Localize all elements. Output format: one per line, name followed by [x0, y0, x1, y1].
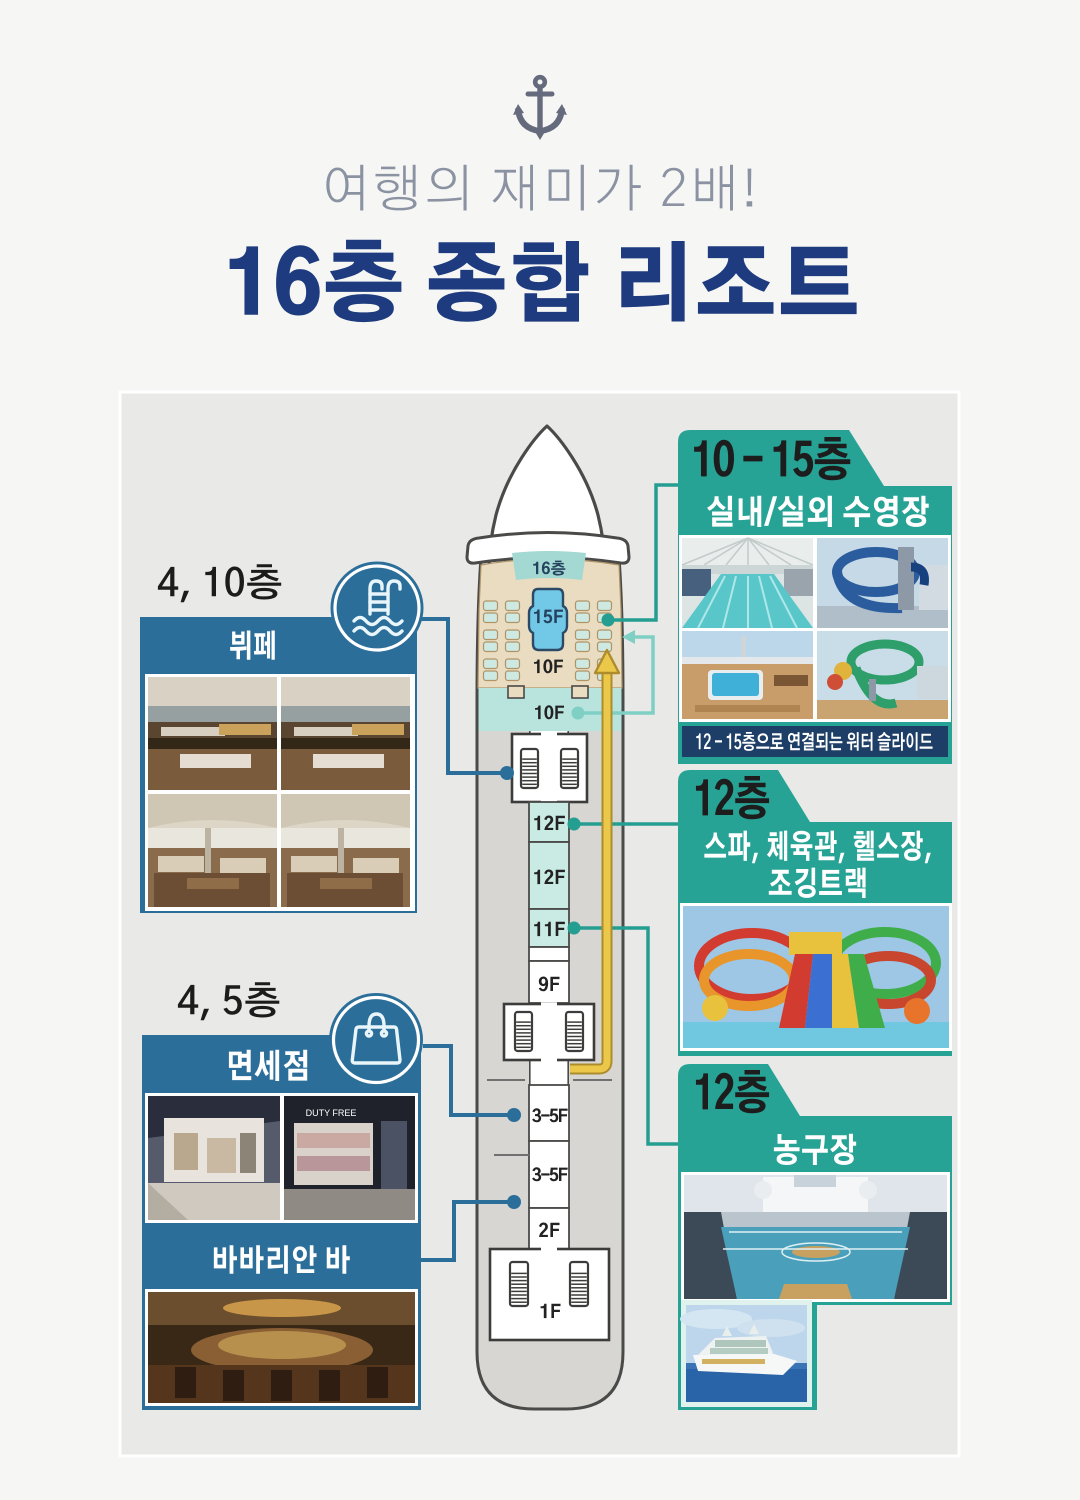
svg-text:DUTY FREE: DUTY FREE	[306, 1108, 357, 1118]
